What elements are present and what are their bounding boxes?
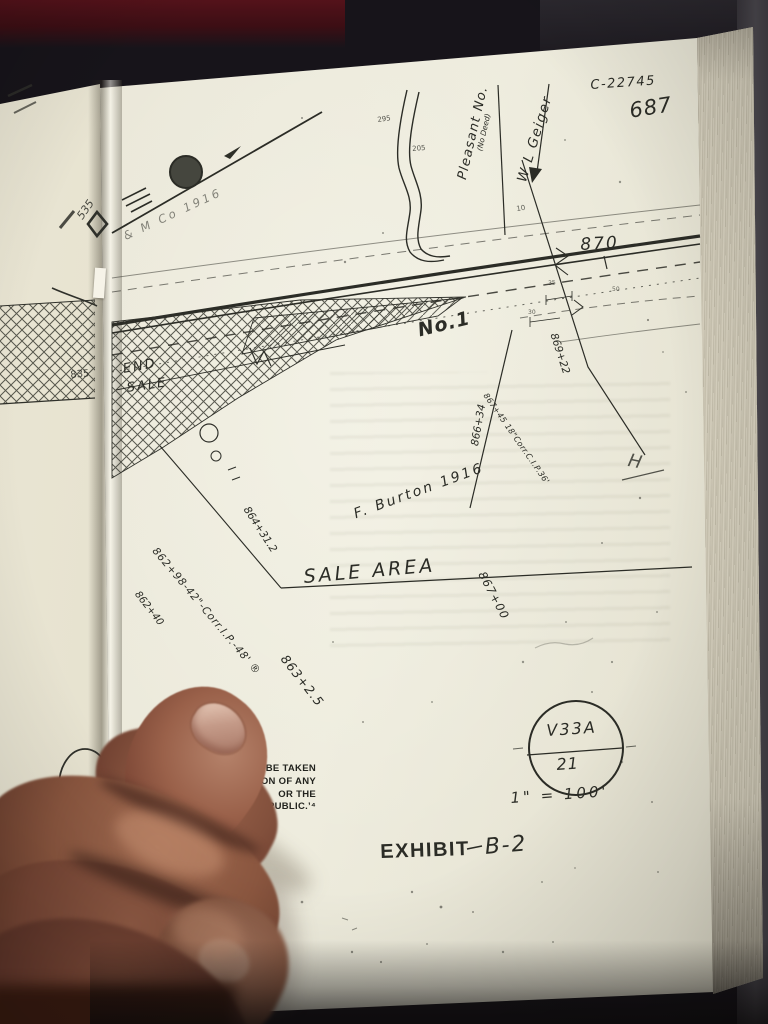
exhibit-number-written: B-2 — [484, 833, 528, 859]
photo-of-open-book: C-22745 687 Pleasant No. (No Deed) W L G… — [0, 0, 768, 1024]
label-stream-205: 205 — [412, 145, 426, 153]
tick-label-30: 30 — [528, 310, 536, 316]
label-station-870: 870 — [580, 235, 619, 254]
left-label-835: 835 — [70, 369, 90, 381]
book-bottom-shadow — [90, 940, 768, 1024]
exhibit-title-printed: EXHIBIT — [380, 839, 470, 862]
stamp-volume-v33a: V33A — [546, 719, 597, 738]
tick-label-35: 35 — [548, 280, 556, 287]
paper-slip — [93, 268, 106, 299]
tick-label-10: 10 — [516, 205, 526, 213]
stamp-page-21: 21 — [556, 755, 579, 773]
tick-label-50: 50 — [612, 287, 620, 293]
book-cover-maroon-edge — [0, 0, 345, 48]
